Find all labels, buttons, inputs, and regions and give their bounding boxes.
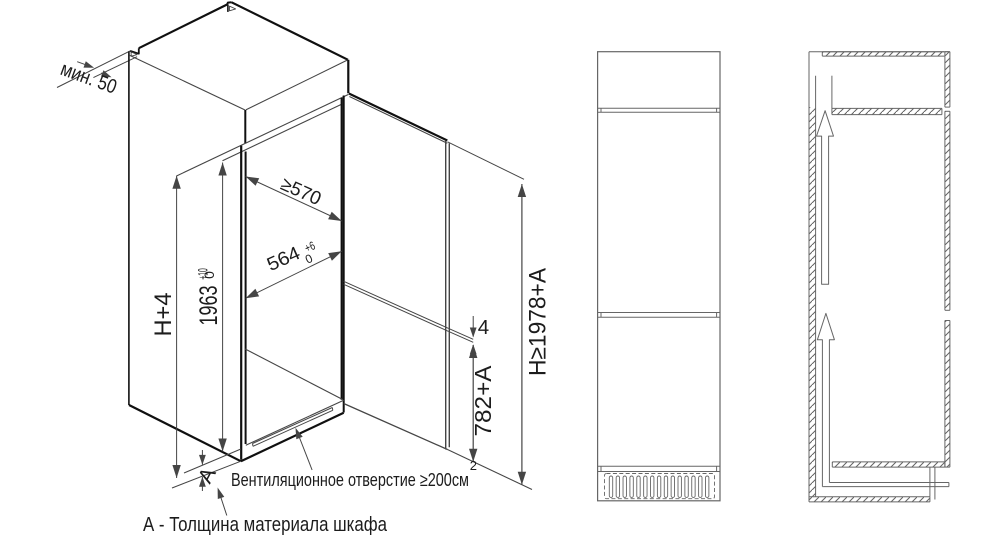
svg-text:782+А: 782+А	[470, 365, 496, 437]
svg-text:1963: 1963	[195, 286, 223, 326]
svg-text:4: 4	[478, 316, 489, 339]
svg-text:0: 0	[201, 271, 217, 279]
svg-text:А - Толщина материала шкафа: А - Толщина материала шкафа	[143, 514, 388, 536]
svg-text:Н≥1978+А: Н≥1978+А	[524, 268, 551, 376]
svg-text:H+4: H+4	[150, 293, 177, 337]
svg-text:Вентиляционное отверстие ≥200с: Вентиляционное отверстие ≥200см	[231, 469, 469, 490]
svg-text:2: 2	[470, 458, 477, 473]
